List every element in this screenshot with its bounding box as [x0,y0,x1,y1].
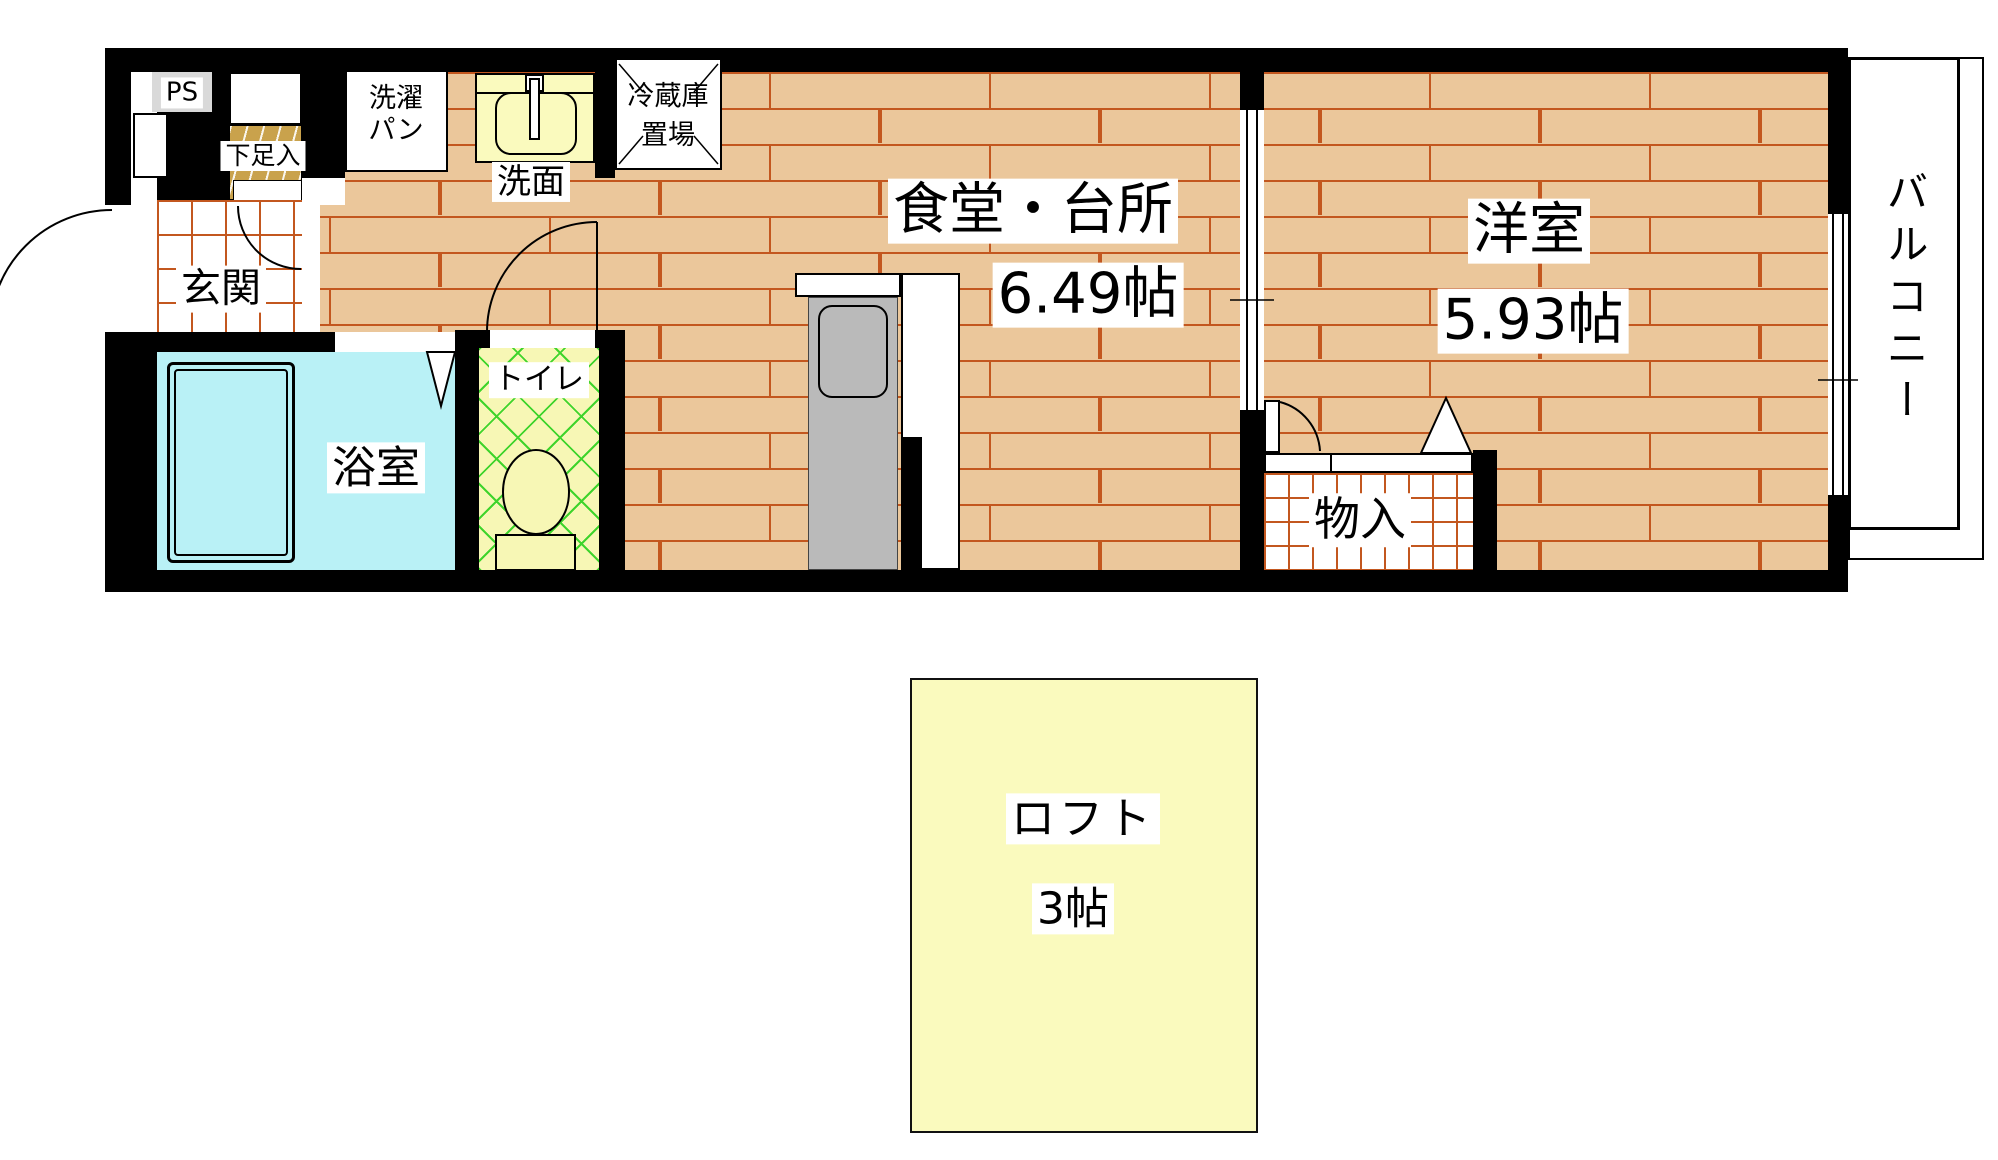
storage-door-arc-icon [1280,402,1320,451]
storage-folding-door-icon [1421,398,1471,453]
fridge-corner-ticks-icon [619,64,718,164]
door-swing-overlay [0,0,1998,1160]
toilet-tank-icon [496,535,575,570]
kitchen-door-arc-icon [487,222,597,332]
floor-plan-canvas: PS 下足入 玄関 洗濯 パン 洗面 冷蔵庫 置場 浴室 トイレ 物入 バルコニ… [0,0,1998,1160]
bathroom-folding-door-icon [427,352,455,406]
toilet-bowl-icon [503,450,569,534]
shoe-cabinet-door-arc-icon [238,206,301,269]
entrance-door-arc-icon [0,210,112,332]
